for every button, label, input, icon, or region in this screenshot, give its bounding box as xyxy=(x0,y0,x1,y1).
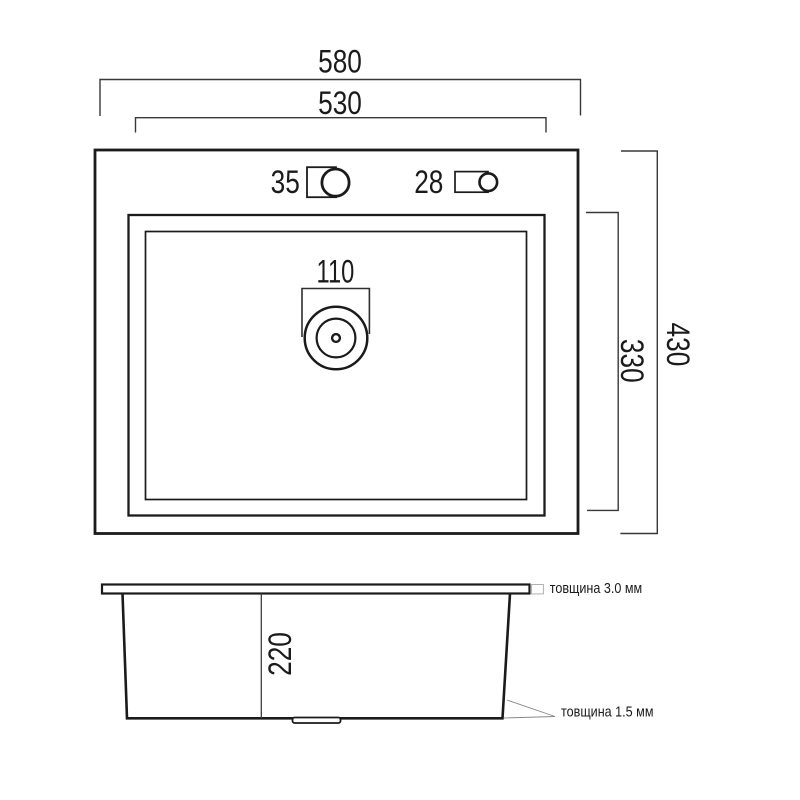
svg-text:товщина 1.5 мм: товщина 1.5 мм xyxy=(561,702,653,719)
svg-text:430: 430 xyxy=(659,323,694,367)
svg-text:330: 330 xyxy=(614,339,649,383)
svg-text:28: 28 xyxy=(414,165,443,200)
svg-text:товщина 3.0 мм: товщина 3.0 мм xyxy=(550,579,642,596)
svg-text:35: 35 xyxy=(271,165,300,200)
svg-text:530: 530 xyxy=(318,87,362,122)
svg-text:220: 220 xyxy=(264,632,299,676)
svg-text:580: 580 xyxy=(318,45,362,80)
svg-text:110: 110 xyxy=(317,254,355,289)
